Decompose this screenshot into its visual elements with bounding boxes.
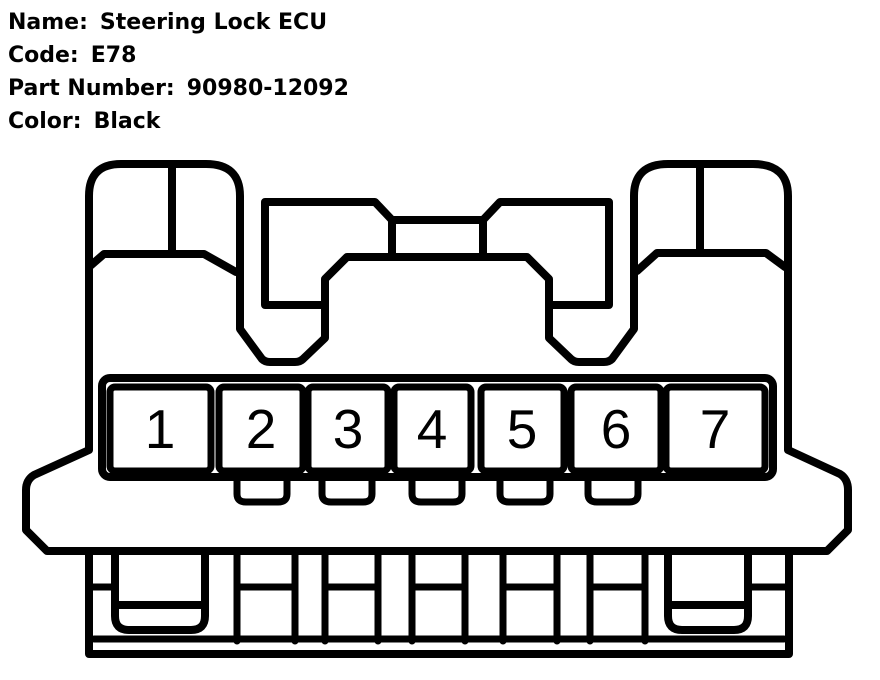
pin-number-5: 5	[507, 398, 538, 460]
right-latch-pocket	[668, 553, 748, 630]
pin-number-7: 7	[700, 398, 731, 460]
connector-pinout-page: Name:Steering Lock ECU Code:E78 Part Num…	[0, 0, 880, 680]
pin-number-6: 6	[601, 398, 632, 460]
latch-bridge	[392, 220, 483, 256]
left-latch-pocket	[115, 553, 205, 630]
pin-number-3: 3	[333, 398, 364, 460]
lower-housing-ribs	[237, 553, 645, 641]
pin-number-2: 2	[246, 398, 277, 460]
connector-diagram: 1 2 3 4 5 6 7	[0, 0, 880, 680]
pin-number-1: 1	[145, 398, 176, 460]
pin-number-4: 4	[417, 398, 448, 460]
